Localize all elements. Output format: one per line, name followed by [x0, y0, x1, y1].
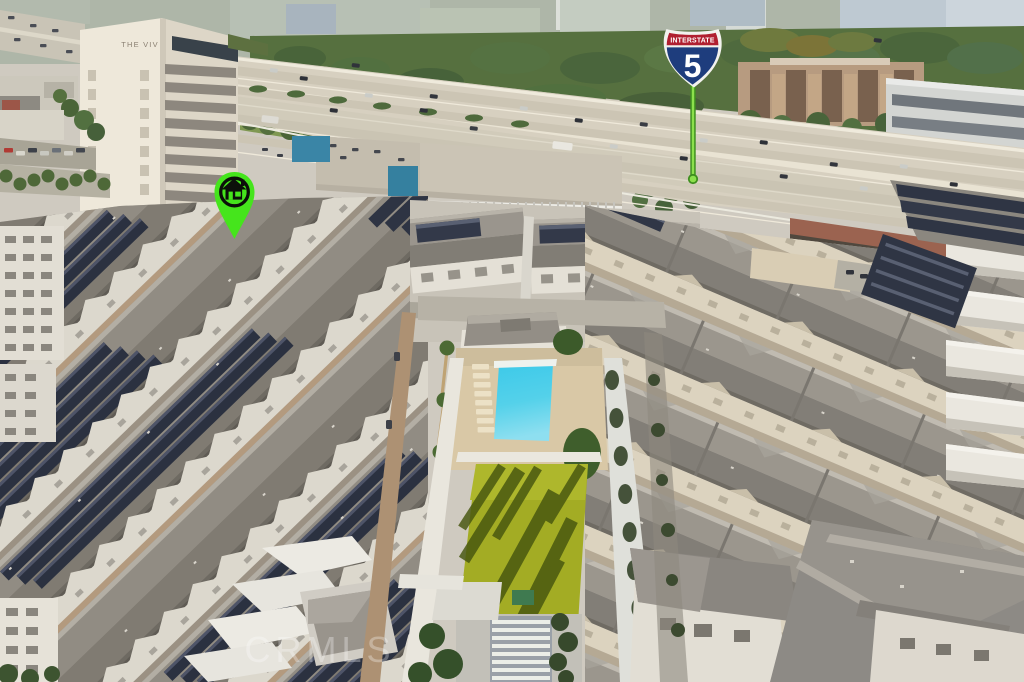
svg-text:THE VIV: THE VIV [121, 40, 159, 49]
